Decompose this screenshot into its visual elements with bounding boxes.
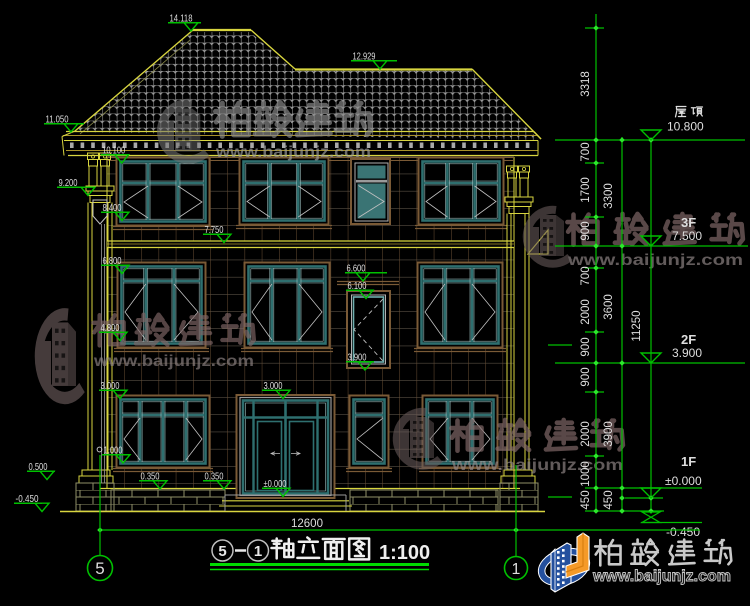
svg-text:1000: 1000 — [580, 461, 592, 487]
svg-text:www.baijunjz.com: www.baijunjz.com — [592, 568, 731, 585]
svg-text:900: 900 — [580, 367, 592, 386]
svg-text:3600: 3600 — [603, 294, 615, 320]
svg-text:2F: 2F — [681, 332, 696, 347]
svg-text:www.baijunjz.com: www.baijunjz.com — [451, 457, 623, 474]
svg-text:3.900: 3.900 — [672, 346, 702, 360]
svg-text:2000: 2000 — [580, 421, 592, 447]
svg-text:3318: 3318 — [580, 71, 592, 97]
svg-text:12600: 12600 — [291, 518, 323, 530]
svg-text:www.baijunjz.com: www.baijunjz.com — [93, 353, 254, 370]
svg-text:±0.000: ±0.000 — [665, 474, 702, 488]
svg-text:5: 5 — [218, 543, 226, 560]
svg-text:1: 1 — [512, 561, 521, 578]
svg-text:450: 450 — [580, 490, 592, 509]
svg-text:1: 1 — [254, 543, 262, 560]
svg-text:11250: 11250 — [631, 310, 643, 341]
svg-text:900: 900 — [580, 221, 592, 240]
svg-text:5: 5 — [95, 559, 104, 578]
svg-text:10.800: 10.800 — [667, 120, 704, 134]
svg-text:1:100: 1:100 — [379, 542, 430, 564]
svg-text:3300: 3300 — [603, 183, 615, 209]
svg-text:www.baijunjz.com: www.baijunjz.com — [567, 252, 743, 269]
svg-text:1700: 1700 — [580, 177, 592, 203]
svg-text:700: 700 — [580, 142, 592, 161]
svg-text:-0.450: -0.450 — [666, 525, 700, 539]
svg-text:7.500: 7.500 — [672, 229, 702, 243]
svg-text:3900: 3900 — [603, 421, 615, 447]
svg-text:450: 450 — [603, 490, 615, 509]
svg-text:2000: 2000 — [580, 299, 592, 325]
svg-text:900: 900 — [580, 337, 592, 356]
svg-text:1F: 1F — [681, 454, 696, 469]
svg-text:700: 700 — [580, 266, 592, 285]
svg-text:3F: 3F — [681, 215, 696, 230]
svg-text:www.baijunjz.com: www.baijunjz.com — [215, 144, 371, 161]
